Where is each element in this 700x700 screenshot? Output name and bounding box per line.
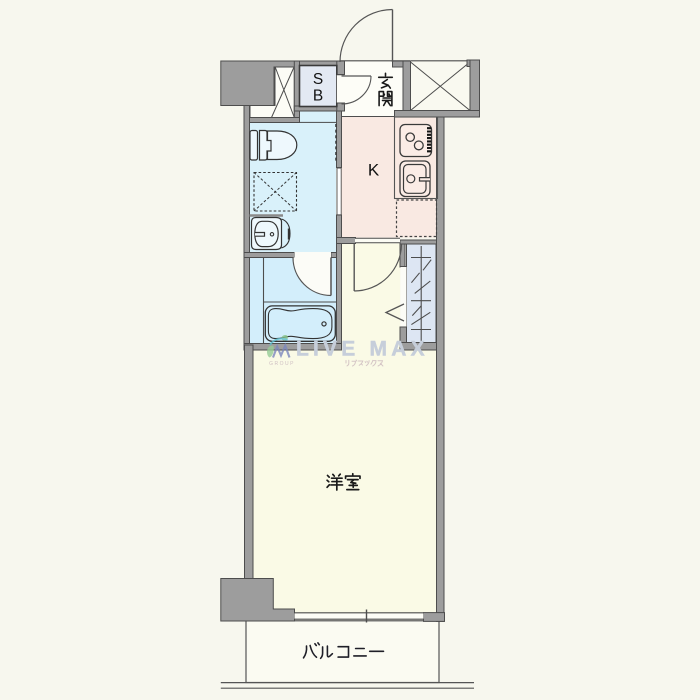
svg-text:S: S [313,71,323,88]
svg-text:LIVE MAX: LIVE MAX [296,338,429,361]
svg-text:K: K [368,161,380,180]
svg-text:GROUP: GROUP [269,361,295,367]
svg-text:B: B [313,88,323,105]
